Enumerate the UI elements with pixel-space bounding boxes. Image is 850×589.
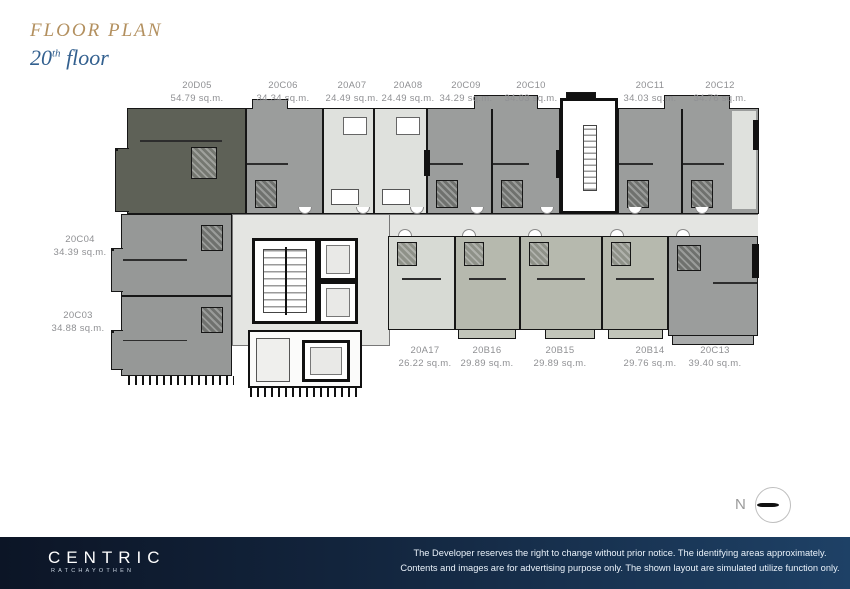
balcony-hatch — [250, 388, 362, 397]
elevator-car — [310, 347, 342, 375]
unit-20C03-bay — [111, 330, 123, 370]
balcony-hatch — [128, 376, 234, 385]
balcony — [545, 330, 595, 339]
unit-label-20C04: 20C04 34.39 sq.m. — [38, 233, 122, 259]
unit-20A08 — [374, 108, 427, 214]
unit-label-20C12: 20C12 34.76 sq.m. — [678, 79, 762, 105]
stairwell-top — [560, 98, 618, 214]
unit-label-20B16: 20B16 29.89 sq.m. — [445, 344, 529, 370]
wall-column — [753, 120, 759, 150]
unit-area: 54.79 sq.m. — [155, 92, 239, 105]
north-label: N — [735, 496, 746, 513]
door-arc — [610, 229, 624, 236]
door-arc — [528, 229, 542, 236]
unit-label-20C03: 20C03 34.88 sq.m. — [36, 309, 120, 335]
unit-area: 29.89 sq.m. — [445, 357, 529, 370]
unit-label-20C13: 20C13 39.40 sq.m. — [673, 344, 757, 370]
unit-20D05 — [127, 108, 246, 214]
unit-id: 20C13 — [673, 344, 757, 357]
stairwell-core — [252, 238, 318, 324]
footer-bar: CENTRIC RATCHAYOTHEN The Developer reser… — [0, 537, 850, 589]
unit-id: 20B16 — [445, 344, 529, 357]
disclaimer-text: The Developer reserves the right to chan… — [398, 546, 842, 576]
unit-label-20D05: 20D05 54.79 sq.m. — [155, 79, 239, 105]
unit-id: 20C12 — [678, 79, 762, 92]
unit-20C06 — [246, 108, 323, 214]
brand-subtitle: RATCHAYOTHEN — [51, 568, 134, 574]
balcony — [458, 330, 516, 339]
unit-area: 34.03 sq.m. — [489, 92, 573, 105]
door-arc — [398, 229, 412, 236]
compass-needle-icon — [757, 503, 779, 507]
unit-20D05-bay — [115, 148, 129, 212]
elevator-car — [326, 288, 350, 317]
unit-id: 20D05 — [155, 79, 239, 92]
elevator-2 — [318, 281, 358, 324]
unit-area: 34.88 sq.m. — [36, 322, 120, 335]
unit-20C03 — [121, 296, 232, 376]
door-arc — [676, 229, 690, 236]
door-arc — [462, 229, 476, 236]
wall-column — [752, 244, 759, 278]
unit-20C04 — [121, 214, 232, 296]
unit-id: 20C04 — [38, 233, 122, 246]
unit-area: 34.39 sq.m. — [38, 246, 122, 259]
unit-20C11 — [618, 108, 682, 214]
unit-20B15 — [520, 236, 602, 330]
stair-treads — [583, 125, 597, 191]
service-elevator — [302, 340, 350, 382]
elevator-1 — [318, 238, 358, 281]
unit-20B16 — [455, 236, 520, 330]
unit-id: 20C03 — [36, 309, 120, 322]
unit-20C13 — [668, 236, 758, 336]
balcony — [608, 330, 663, 339]
wall-column — [424, 150, 430, 176]
unit-label-20C10: 20C10 34.03 sq.m. — [489, 79, 573, 105]
floor-plan-drawing: 20D05 54.79 sq.m. 20C06 34.34 sq.m. 20A0… — [0, 0, 850, 520]
unit-label-20B15: 20B15 29.89 sq.m. — [518, 344, 602, 370]
elevator-car — [326, 245, 350, 274]
disclaimer-line-1: The Developer reserves the right to chan… — [398, 546, 842, 561]
unit-id: 20B15 — [518, 344, 602, 357]
unit-20C09 — [427, 108, 492, 214]
disclaimer-line-2: Contents and images are for advertising … — [398, 561, 842, 576]
unit-id: 20C10 — [489, 79, 573, 92]
unit-20A17 — [388, 236, 455, 330]
brand-logo: CENTRIC — [48, 548, 166, 568]
service-fixture — [256, 338, 290, 382]
unit-20A07 — [323, 108, 374, 214]
stair-rail — [285, 247, 287, 315]
unit-area: 34.76 sq.m. — [678, 92, 762, 105]
wall-column — [556, 150, 563, 178]
unit-20B14 — [602, 236, 668, 330]
floor-plan-page: { "header": { "title": "FLOOR PLAN", "fl… — [0, 0, 850, 589]
unit-area: 29.89 sq.m. — [518, 357, 602, 370]
north-indicator: N — [731, 484, 801, 528]
unit-20C12 — [682, 108, 759, 214]
unit-area: 39.40 sq.m. — [673, 357, 757, 370]
unit-20C10 — [492, 108, 560, 214]
